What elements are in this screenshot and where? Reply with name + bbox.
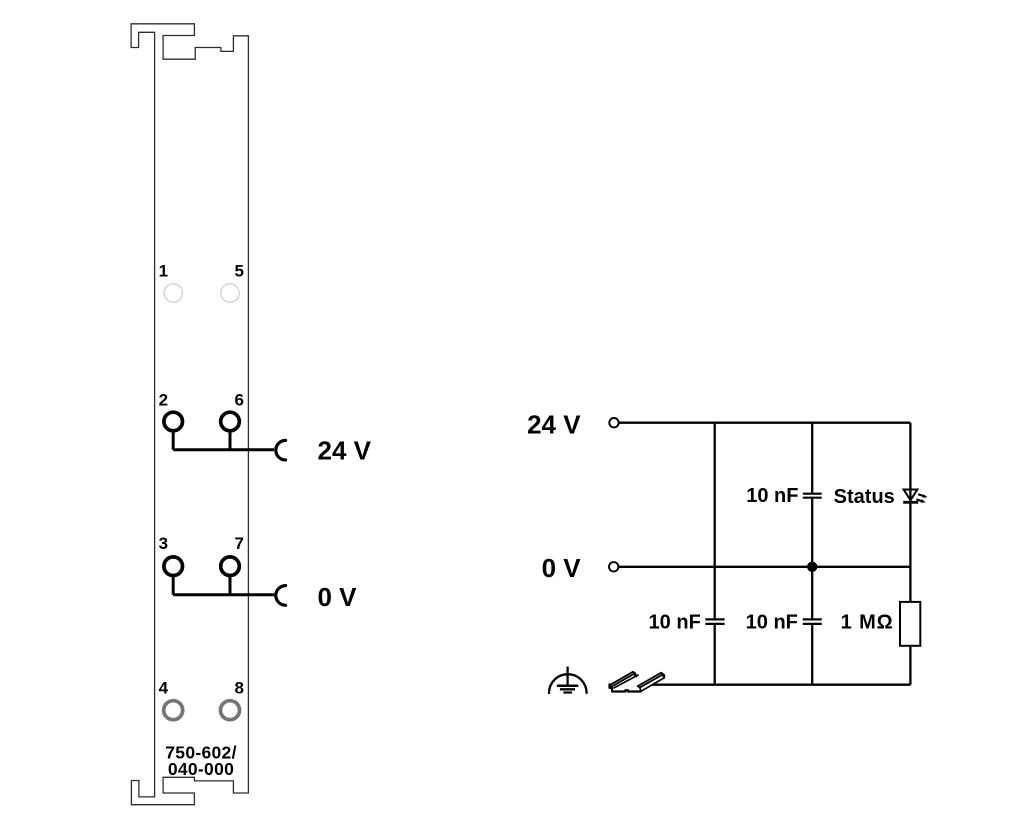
- svg-text:10 nF: 10 nF: [746, 485, 798, 507]
- svg-text:6: 6: [234, 391, 243, 410]
- svg-text:24 V: 24 V: [318, 435, 372, 465]
- svg-text:1: 1: [159, 262, 168, 281]
- svg-text:5: 5: [234, 262, 243, 281]
- svg-text:8: 8: [234, 679, 243, 698]
- svg-text:040-000: 040-000: [168, 759, 234, 779]
- svg-text:0 V: 0 V: [318, 582, 358, 612]
- svg-text:3: 3: [159, 534, 168, 553]
- svg-text:1 MΩ: 1 MΩ: [841, 612, 894, 634]
- svg-text:2: 2: [159, 391, 168, 410]
- svg-text:Status: Status: [834, 486, 895, 508]
- svg-text:0 V: 0 V: [542, 553, 582, 583]
- svg-text:24 V: 24 V: [527, 410, 581, 440]
- svg-text:10 nF: 10 nF: [649, 612, 701, 634]
- svg-text:10 nF: 10 nF: [746, 612, 798, 634]
- svg-text:7: 7: [234, 534, 243, 553]
- svg-text:4: 4: [159, 679, 169, 698]
